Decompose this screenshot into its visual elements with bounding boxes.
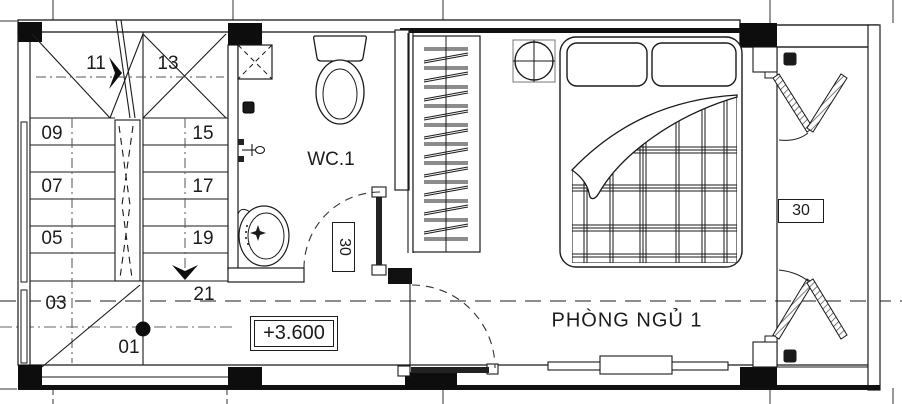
stair-step-label-13: 13 (157, 53, 178, 75)
ceiling-light-icon (513, 40, 555, 82)
stair-step-label-21: 21 (193, 284, 214, 306)
stair-step-label-01: 01 (118, 337, 139, 359)
folding-door-top (773, 74, 847, 140)
wc-door-dimension: 30 (332, 222, 355, 272)
balcony-door-dimension-value: 30 (792, 202, 810, 220)
stair-step-label-19: 19 (192, 228, 213, 250)
stair-break (115, 20, 140, 281)
left-window (21, 122, 27, 363)
stair-step-label-03: 03 (45, 293, 66, 315)
folding-door-bottom (773, 270, 847, 339)
bed-icon (560, 37, 742, 267)
balcony-drain-bottom-icon (784, 350, 796, 362)
floor-drain-icon (243, 102, 254, 113)
wc-door-dimension-value: 30 (334, 238, 352, 256)
level-value: +3.600 (254, 320, 334, 347)
toilet-icon (314, 36, 367, 124)
stair-step-label-09: 09 (41, 123, 62, 145)
stair-newel-dot (136, 322, 151, 337)
level-annotation: +3.600 (250, 316, 338, 351)
bottom-window (548, 356, 728, 374)
stair-step-label-17: 17 (192, 176, 213, 198)
wardrobe-icon (413, 36, 480, 252)
sink-icon (238, 206, 289, 266)
bedroom-room-label: PHÒNG NGỦ 1 (551, 310, 702, 333)
grid-lines (0, 301, 902, 327)
floor-plan: 11 13 09 15 07 17 05 19 03 21 01 WC.1 PH… (0, 0, 902, 404)
vent-shaft-icon (238, 45, 272, 79)
shower-mixer-icon (238, 139, 265, 162)
stair-up-arrow-icon (109, 57, 122, 89)
pillow-left (567, 43, 647, 86)
stair-step-label-05: 05 (41, 228, 62, 250)
stair-step-label-07: 07 (41, 176, 62, 198)
balcony-door-dimension: 30 (778, 199, 824, 223)
balcony-drain-top-icon (784, 53, 796, 65)
stair-step-label-11: 11 (86, 53, 106, 75)
stair-step-label-15: 15 (192, 123, 213, 145)
bedroom-door (398, 285, 498, 376)
wc-room-label: WC.1 (307, 149, 355, 171)
pillow-right (652, 43, 736, 86)
